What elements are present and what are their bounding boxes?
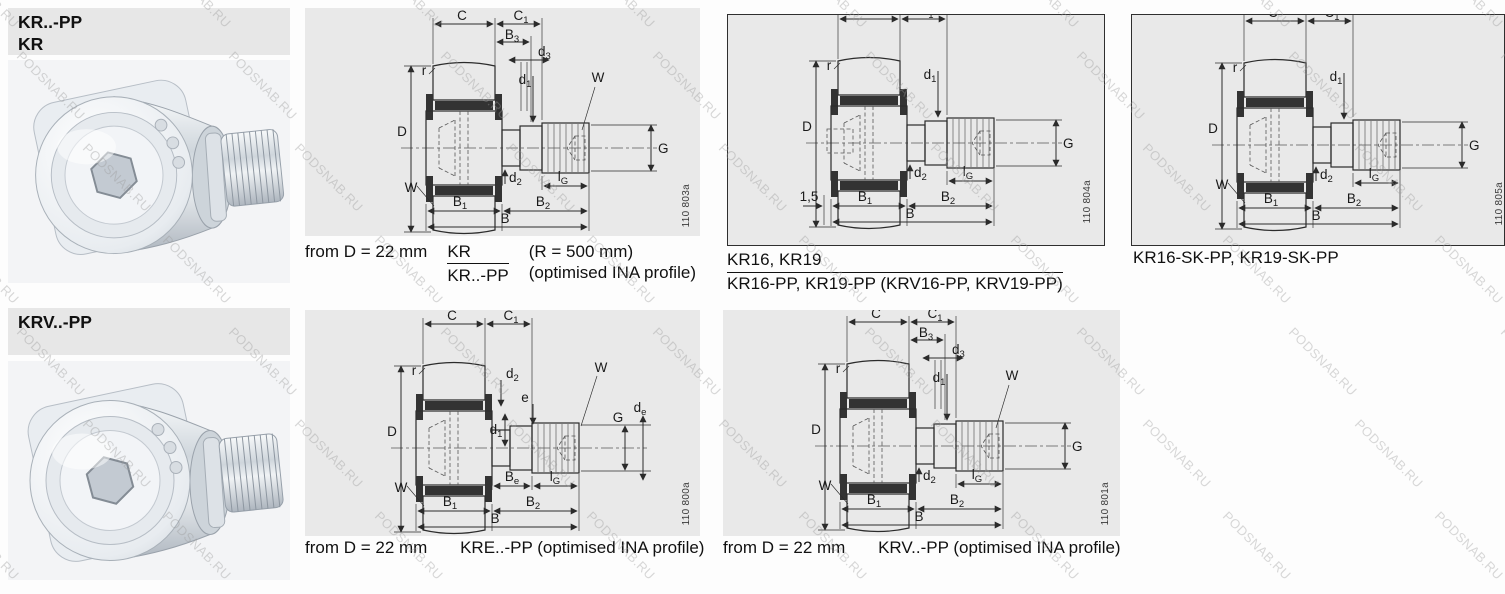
dim-label-d2: d2 <box>923 468 936 486</box>
caption-kre-prefix: from D = 22 mm <box>305 538 427 557</box>
caption-kre-text: KRE..-PP (optimised INA profile) <box>460 538 704 557</box>
dim-label-g: G <box>658 141 669 156</box>
caption-krv-prefix: from D = 22 mm <box>723 538 845 557</box>
bearing-3d-illustration <box>8 361 290 580</box>
dim-label-g: G <box>1469 138 1480 153</box>
dim-label-r: r <box>422 63 427 78</box>
caption-kr-prefix: from D = 22 mm <box>305 241 427 262</box>
drawing-panel-kre: C C1 r d2 W e d1 D G de W Be lG B1 B2 B <box>305 310 700 536</box>
dim-label-dd: D <box>387 424 397 439</box>
drawing-panel-krv: C C1 B3 d3 d1 W r D G W d2 lG B1 B2 B <box>723 310 1120 536</box>
dim-label-b: B <box>490 511 499 526</box>
dim-label-d1: d1 <box>933 370 946 388</box>
dim-label-b2: B2 <box>950 492 964 510</box>
dim-label-w-bottom: W <box>405 180 418 195</box>
dim-label-c: C <box>862 15 872 18</box>
caption-kr16sk: KR16-SK-PP, KR19-SK-PP <box>1133 247 1339 268</box>
dim-label-b1: B1 <box>867 492 881 510</box>
dim-label-c: C <box>457 8 467 23</box>
caption-krv: from D = 22 mm KRV..-PP (optimised INA p… <box>723 537 1121 558</box>
technical-drawing-kr: C C1 B3 d3 d1 W r D G W d2 lG B1 B2 B <box>305 8 700 236</box>
drawing-panel-kr16sk: C C1 r d1 D G W d2 lG B1 B2 B <box>1131 14 1505 246</box>
dim-label-w-bottom: W <box>819 478 832 493</box>
watermark-text: PODSNAB.RU <box>1498 324 1505 398</box>
series-title-krv-pp: KRV..-PP <box>18 311 290 333</box>
dim-label-dd: D <box>397 124 407 139</box>
product-photo-kr <box>8 60 290 283</box>
bearing-3d-illustration <box>8 60 290 283</box>
dim-label-d3: d3 <box>952 342 965 360</box>
watermark-text: PODSNAB.RU <box>1432 508 1505 582</box>
dim-label-d2: d2 <box>506 366 519 384</box>
series-header-krv: KRV..-PP <box>8 308 290 355</box>
caption-kr-frac-bottom: KR..-PP <box>447 263 508 286</box>
dim-label-r: r <box>412 363 417 378</box>
dim-label-d3: d3 <box>538 44 551 62</box>
series-title-kr-pp: KR..-PP <box>18 11 290 33</box>
drawing-geometry <box>391 363 647 534</box>
dim-label-g: G <box>613 410 624 425</box>
dim-label-lg: lG <box>972 467 982 485</box>
dim-label-d1: d1 <box>1330 69 1343 87</box>
caption-kr: from D = 22 mm KR KR..-PP (R = 500 mm) (… <box>305 241 696 286</box>
dim-label-d2: d2 <box>914 165 927 183</box>
dim-label-lg: lG <box>963 164 973 182</box>
dim-label-b1: B1 <box>453 194 467 212</box>
dim-label-c: C <box>871 310 881 321</box>
caption-kr-fraction: KR KR..-PP <box>447 241 508 286</box>
caption-kr16-line2: KR16-PP, KR19-PP (KRV16-PP, KRV19-PP) <box>727 274 1063 293</box>
dimension-lines <box>394 318 651 532</box>
caption-kr-notes: (R = 500 mm) (optimised INA profile) <box>529 241 696 283</box>
dim-label-dd: D <box>811 422 821 437</box>
technical-drawing-kr16: C C1 r d1 D G d2 lG 1,5 B1 B2 B <box>728 15 1103 244</box>
dim-label-chamfer: 1,5 <box>800 189 819 204</box>
watermark-text: PODSNAB.RU <box>1352 416 1426 490</box>
drawing-number-kr16sk: 110 805a <box>1494 182 1505 225</box>
dim-label-d1: d1 <box>924 67 937 85</box>
caption-krv-text: KRV..-PP (optimised INA profile) <box>878 538 1121 557</box>
drawing-number-kr: 110 803a <box>681 184 692 227</box>
dim-label-w-top: W <box>595 360 608 375</box>
drawing-number-kr16: 110 804a <box>1082 180 1093 223</box>
dimension-labels: C C1 r d1 D G d2 lG 1,5 B1 B2 B <box>800 15 1074 221</box>
drawing-number-kre: 110 800a <box>681 482 692 525</box>
caption-kre: from D = 22 mm KRE..-PP (optimised INA p… <box>305 537 704 558</box>
watermark-text: PODSNAB.RU <box>1220 508 1294 582</box>
dim-label-lg: lG <box>550 469 560 487</box>
dim-label-d1: d1 <box>519 72 532 90</box>
drawing-panel-kr16: C C1 r d1 D G d2 lG 1,5 B1 B2 B <box>727 14 1105 246</box>
dim-label-g: G <box>1072 439 1083 454</box>
technical-drawing-kr16sk: C C1 r d1 D G W d2 lG B1 B2 B <box>1132 15 1503 244</box>
dim-label-b1: B1 <box>1264 191 1278 209</box>
caption-kr-note-top: (R = 500 mm) <box>529 241 696 262</box>
watermark-text: PODSNAB.RU <box>1140 416 1214 490</box>
dim-label-b2: B2 <box>536 194 550 212</box>
dim-label-c: C <box>447 310 457 323</box>
dim-label-d2: d2 <box>509 170 522 188</box>
dim-label-b2: B2 <box>941 189 955 207</box>
dim-label-de: de <box>634 400 647 418</box>
series-header-kr: KR..-PP KR <box>8 8 290 55</box>
dim-label-r: r <box>1233 60 1238 75</box>
dim-label-w-top: W <box>592 70 605 85</box>
dim-label-e: e <box>521 390 529 405</box>
dim-label-lg: lG <box>1369 166 1379 184</box>
product-photo-krv <box>8 361 290 580</box>
dim-label-b: B <box>500 211 509 226</box>
dim-label-w-top: W <box>1006 368 1019 383</box>
dim-label-b: B <box>914 509 923 524</box>
dimension-lines <box>404 18 657 232</box>
caption-kr16: KR16, KR19 KR16-PP, KR19-PP (KRV16-PP, K… <box>727 249 1063 294</box>
caption-kr-note-bottom: (optimised INA profile) <box>529 262 696 283</box>
series-title-kr: KR <box>18 33 290 55</box>
dim-label-c1: C1 <box>918 15 933 21</box>
drawing-panel-kr: C C1 B3 d3 d1 W r D G W d2 lG B1 B2 B <box>305 8 700 236</box>
dim-label-d2: d2 <box>1320 167 1333 185</box>
dim-label-b2: B2 <box>526 494 540 512</box>
dim-label-b: B <box>1311 208 1320 223</box>
dim-label-b2: B2 <box>1347 191 1361 209</box>
dim-label-c: C <box>1268 15 1278 20</box>
caption-kr-frac-top: KR <box>447 241 508 263</box>
dim-label-b1: B1 <box>858 189 872 207</box>
dim-label-dd: D <box>802 119 812 134</box>
dimension-lines <box>818 316 1071 530</box>
dim-label-g: G <box>1063 136 1074 151</box>
dim-label-c1: C1 <box>513 8 528 26</box>
dim-label-dd: D <box>1208 121 1218 136</box>
watermark-text: PODSNAB.RU <box>1286 324 1360 398</box>
dim-label-w-bottom: W <box>1216 177 1229 192</box>
technical-drawing-kre: C C1 r d2 W e d1 D G de W Be lG B1 B2 B <box>305 310 700 536</box>
drawing-number-krv: 110 801a <box>1100 482 1111 525</box>
dim-label-lg: lG <box>558 169 568 187</box>
catalog-page: KR..-PP KR <box>0 0 1505 594</box>
caption-kr16-line1: KR16, KR19 <box>727 249 1063 273</box>
dim-label-b1: B1 <box>443 494 457 512</box>
dim-label-c1: C1 <box>1324 15 1339 23</box>
dim-label-w-bottom: W <box>395 480 408 495</box>
dim-label-r: r <box>827 58 832 73</box>
dim-label-r: r <box>836 361 841 376</box>
technical-drawing-krv: C C1 B3 d3 d1 W r D G W d2 lG B1 B2 B <box>723 310 1120 536</box>
dimension-lines <box>1215 15 1468 229</box>
dim-label-b: B <box>905 206 914 221</box>
dim-label-be: Be <box>505 469 519 487</box>
